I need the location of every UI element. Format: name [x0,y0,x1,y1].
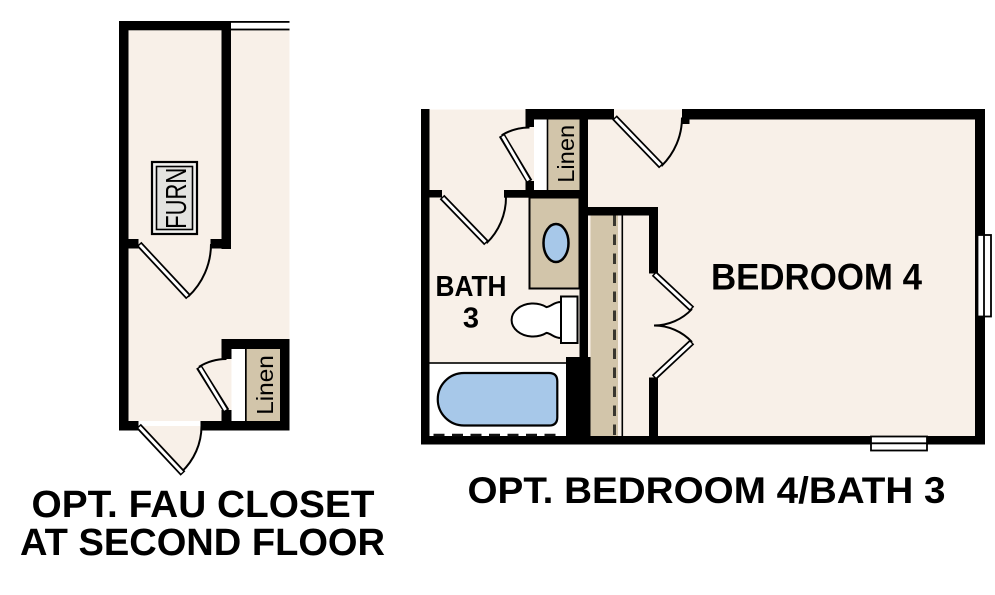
svg-text:FURN: FURN [161,168,193,229]
svg-text:Linen: Linen [252,355,278,415]
svg-text:OPT. BEDROOM 4/BATH 3: OPT. BEDROOM 4/BATH 3 [468,469,946,511]
svg-text:BATH: BATH [436,271,507,303]
svg-text:OPT. FAU CLOSET: OPT. FAU CLOSET [32,483,376,526]
svg-text:AT SECOND FLOOR: AT SECOND FLOOR [20,521,385,564]
svg-text:BEDROOM 4: BEDROOM 4 [711,256,922,298]
svg-text:Linen: Linen [553,125,579,183]
svg-text:3: 3 [463,303,479,335]
